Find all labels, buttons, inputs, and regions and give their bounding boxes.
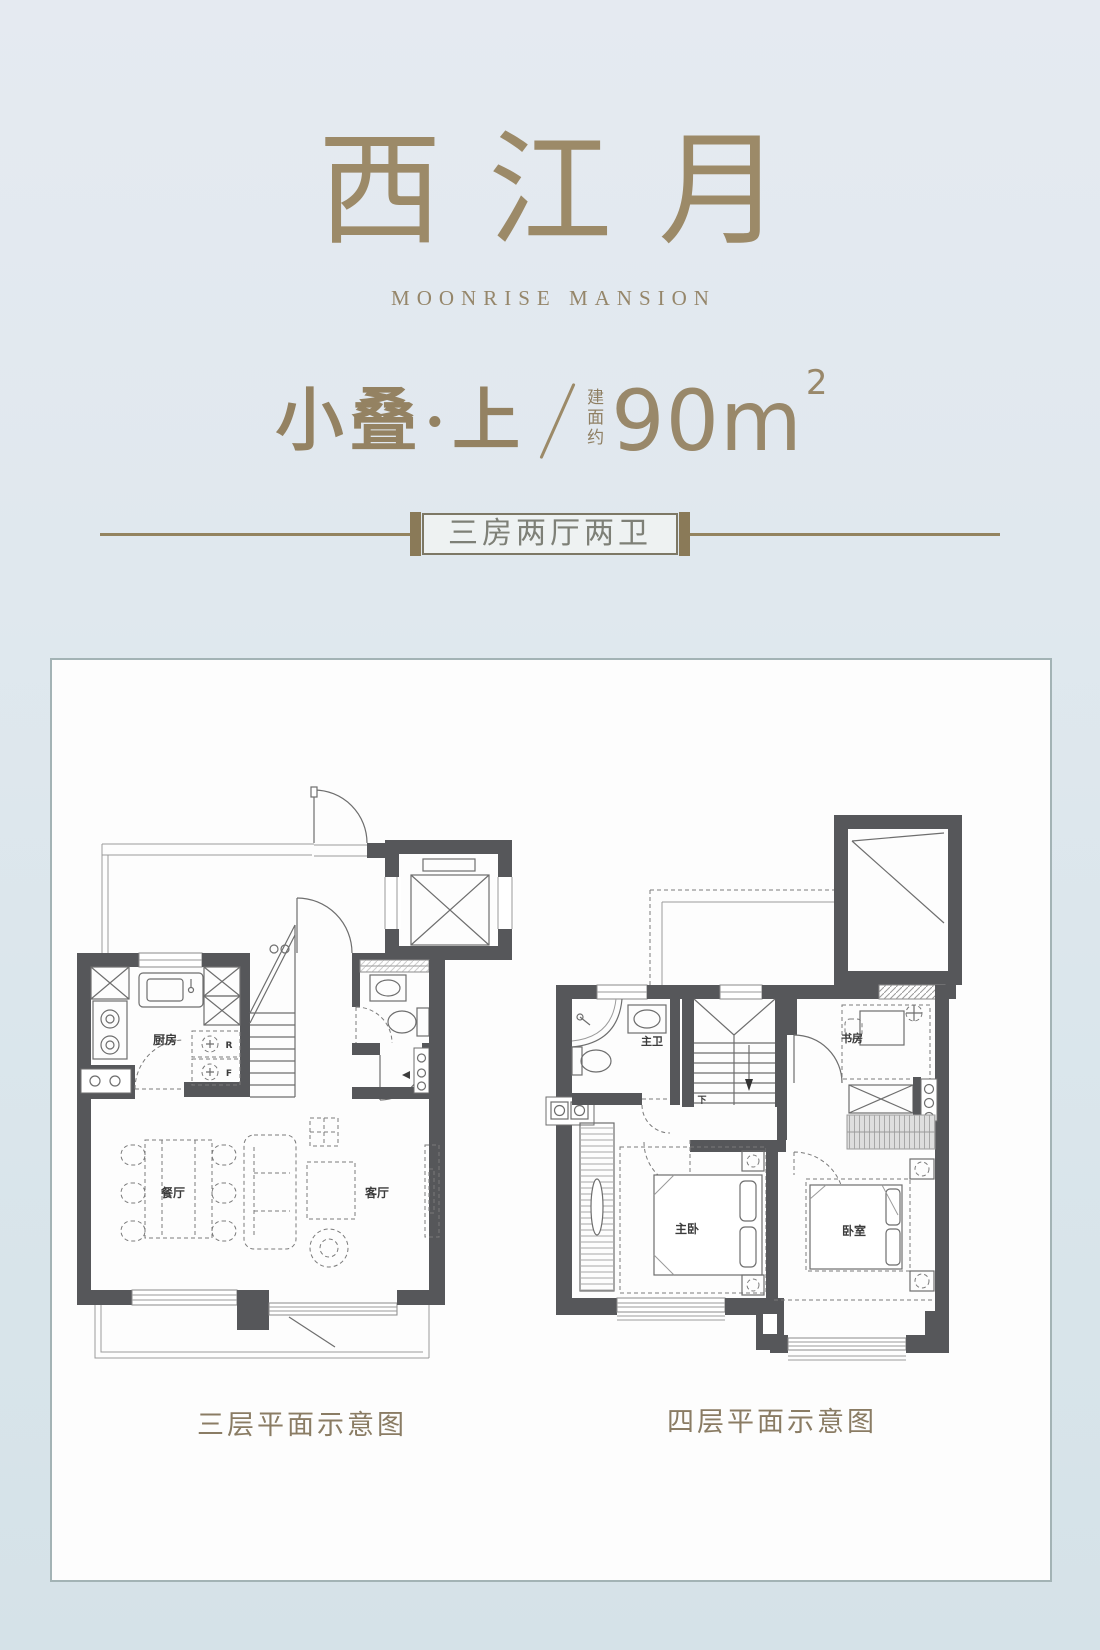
floor4-caption: 四层平面示意图 — [622, 1400, 922, 1439]
page-title: 西江月 — [0, 118, 1100, 267]
unit-top-wall — [77, 843, 385, 967]
down-arrow-icon — [745, 1079, 753, 1091]
master-bedroom-label: 主卧 — [675, 1221, 699, 1236]
badge-right-line — [690, 533, 1000, 536]
kitchen-label: 厨房 — [153, 1032, 177, 1047]
entry-terrace-outline — [102, 844, 367, 953]
foyer — [352, 1048, 429, 1100]
badge-row: 三房两厅两卫 — [100, 512, 1000, 556]
fridge-label: R — [226, 1041, 233, 1051]
vent-arrow-icon — [402, 1071, 410, 1079]
floor3-caption: 三层平面示意图 — [152, 1403, 452, 1442]
right-wall — [935, 985, 949, 1311]
unit-type-label: 小叠·上 — [275, 387, 526, 455]
badge-left-cap — [410, 512, 421, 556]
bathroom — [352, 960, 429, 1055]
dining-label: 餐厅 — [161, 1185, 185, 1200]
floor3-plan: R F 厨房 — [77, 745, 562, 1365]
poster-page: 西江月 MOONRISE MANSION 小叠·上 建面约 90m 2 三房两厅… — [0, 0, 1100, 1650]
right-wall — [429, 960, 445, 1305]
area-value: 90m — [611, 379, 803, 463]
left-wall — [77, 953, 135, 1305]
unit-spec-row: 小叠·上 建面约 90m 2 — [0, 366, 1100, 476]
bedroom-label: 卧室 — [842, 1223, 866, 1238]
bedroom: 卧室 — [806, 1159, 934, 1291]
bottom-wall-balcony — [77, 1290, 445, 1358]
area-prefix-label: 建面约 — [585, 388, 602, 454]
slash-divider-icon — [540, 383, 576, 459]
layout-badge: 三房两厅两卫 — [422, 513, 678, 556]
roof-terrace — [834, 815, 962, 985]
bottom-wall — [572, 1298, 949, 1360]
elevator-shaft — [383, 840, 514, 960]
unit-entry-door — [297, 898, 352, 953]
stairs: 下 — [682, 999, 787, 1140]
living-label: 客厅 — [364, 1185, 389, 1200]
badge-right-cap — [679, 512, 690, 556]
left-wall — [556, 985, 572, 1315]
roof-outline — [650, 890, 834, 985]
floor-plans-panel: R F 厨房 — [50, 658, 1052, 1582]
area-exponent: 2 — [806, 363, 828, 403]
stairs-down-label: 下 — [697, 1095, 706, 1106]
freezer-label: F — [226, 1069, 232, 1079]
dining-room: 餐厅 — [121, 1140, 236, 1241]
closet-shaft — [847, 1077, 937, 1149]
badge-left-line — [100, 533, 410, 536]
master-bath-label: 主卫 — [641, 1034, 663, 1048]
floor4-plan: 主卫 下 — [542, 795, 1022, 1375]
unit-top-wall — [556, 985, 956, 999]
study: 书房 — [787, 999, 930, 1083]
study-label: 书房 — [841, 1031, 863, 1045]
divider-wall — [766, 1140, 778, 1298]
page-subtitle: MOONRISE MANSION — [0, 286, 1100, 311]
living-room: 客厅 — [244, 1118, 439, 1267]
entry-door — [311, 787, 367, 843]
